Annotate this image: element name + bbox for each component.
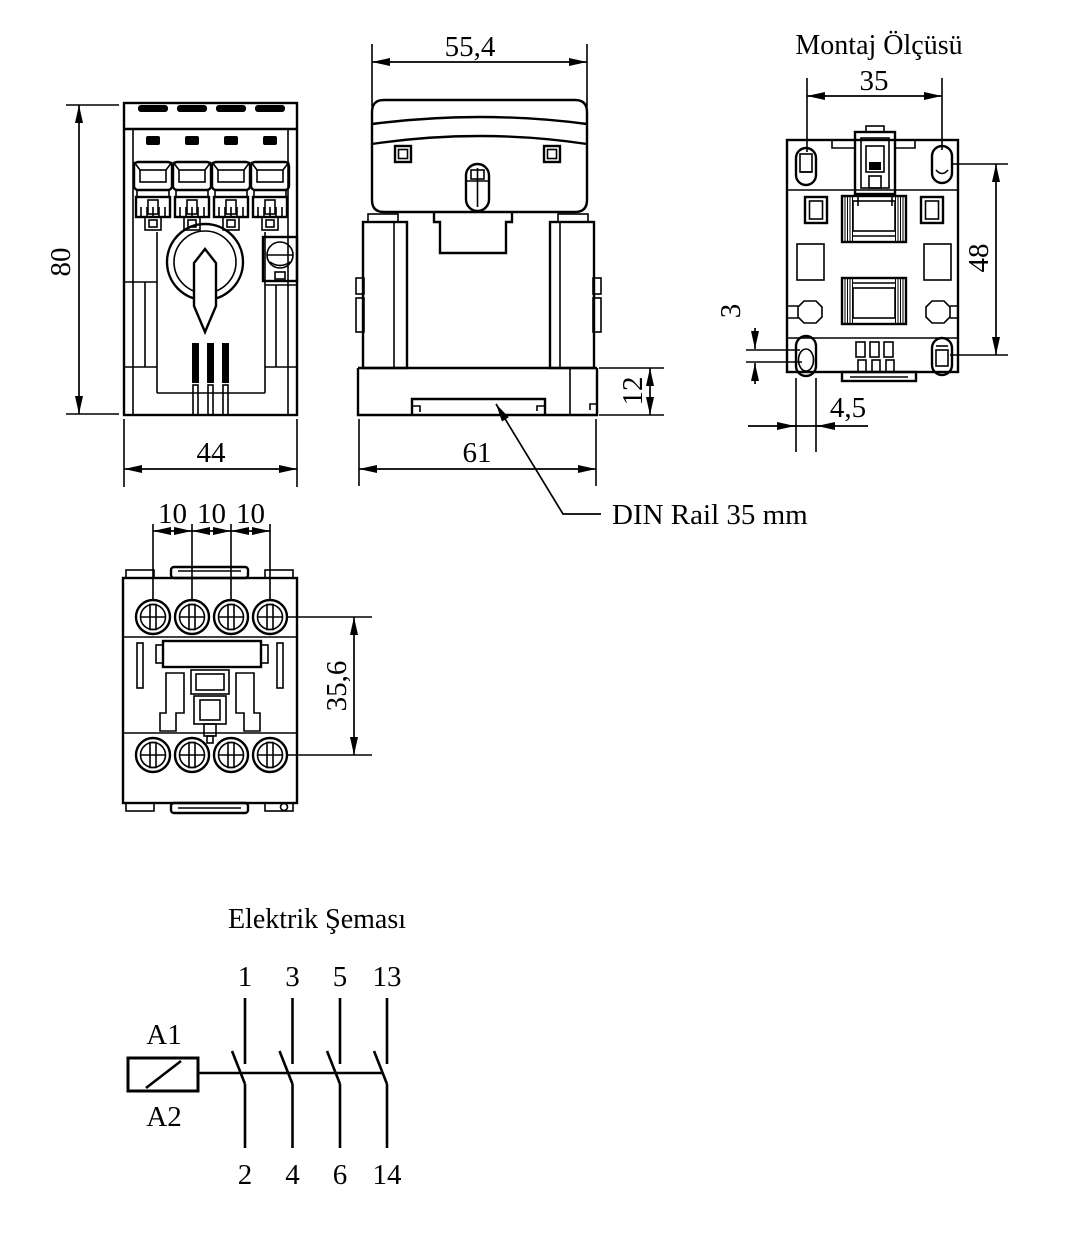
terminal-clamp xyxy=(173,162,211,230)
terminal-screw xyxy=(253,600,287,634)
dim-base-width: 61 xyxy=(463,437,492,469)
coil-window xyxy=(842,278,906,324)
terminal-screw xyxy=(253,738,287,772)
side-view-dimensions: 55,4 12 61 DIN Rail 35 mm xyxy=(359,31,808,531)
mounting-hole xyxy=(932,146,952,183)
contactor-drawing-svg: 80 44 xyxy=(0,0,1080,1236)
dim-front-height: 80 xyxy=(45,248,77,277)
dim-slot-width: 4,5 xyxy=(830,392,866,424)
front-view-device xyxy=(124,103,297,415)
coil-terminal-a1: A1 xyxy=(146,1019,181,1051)
dim-hole-pitch-x: 35 xyxy=(860,65,889,97)
din-rail-callout: DIN Rail 35 mm xyxy=(612,499,808,531)
schematic: Elektrik Şeması A1 A2 xyxy=(128,904,406,1191)
terminal-screw xyxy=(175,738,209,772)
terminal-label-bottom: 6 xyxy=(333,1159,348,1191)
terminal-screw xyxy=(136,738,170,772)
schematic-title: Elektrik Şeması xyxy=(228,904,406,935)
terminal-label-top: 5 xyxy=(333,961,348,993)
dim-front-width: 44 xyxy=(197,437,227,469)
keyhole-slot xyxy=(466,164,489,211)
mounting-clip xyxy=(855,126,895,206)
terminal-label-top: 3 xyxy=(285,961,300,993)
dim-pitch-2: 10 xyxy=(197,498,226,530)
dim-rail-height: 12 xyxy=(617,377,649,406)
mounting-view-dimensions: 35 48 3 4,5 xyxy=(715,65,1008,452)
mounting-view-title: Montaj Ölçüsü xyxy=(795,30,962,61)
bottom-view: 10 10 10 35,6 xyxy=(123,498,372,813)
mounting-hole xyxy=(796,148,816,185)
dim-pitch-1: 10 xyxy=(158,498,187,530)
terminal-screw xyxy=(136,600,170,634)
terminal-label-bottom: 2 xyxy=(238,1159,253,1191)
dim-slot-offset: 3 xyxy=(715,304,747,319)
din-rail-foot xyxy=(358,368,597,415)
terminal-screw xyxy=(214,600,248,634)
coil-window xyxy=(842,196,906,242)
terminal-label-bottom: 14 xyxy=(373,1159,403,1191)
coil-symbol xyxy=(128,1058,198,1091)
aux-screw xyxy=(263,237,297,281)
side-view: 55,4 12 61 DIN Rail 35 mm xyxy=(356,31,808,531)
knob-pointer xyxy=(194,249,216,332)
terminal-label-top: 13 xyxy=(373,961,402,993)
front-view: 80 44 xyxy=(45,103,297,487)
dim-pitch-3: 10 xyxy=(236,498,265,530)
mounting-hole xyxy=(796,336,816,376)
terminal-clamp xyxy=(251,162,289,230)
mounting-hole xyxy=(932,338,952,375)
technical-drawing-page: 80 44 xyxy=(0,0,1080,1236)
dim-row-distance: 35,6 xyxy=(321,661,353,712)
terminal-label-bottom: 4 xyxy=(285,1159,300,1191)
coil-terminal-a2: A2 xyxy=(146,1101,181,1133)
terminal-screw xyxy=(214,738,248,772)
terminal-clamp xyxy=(134,162,172,230)
terminal-screw xyxy=(175,600,209,634)
mounting-view: Montaj Ölçüsü xyxy=(715,30,1008,452)
terminal-label-top: 1 xyxy=(238,961,253,993)
dim-hole-pitch-y: 48 xyxy=(963,244,995,273)
side-view-device xyxy=(356,100,601,415)
bottom-view-device xyxy=(123,567,297,813)
dim-side-width: 55,4 xyxy=(445,31,496,63)
mounting-view-device xyxy=(787,126,958,381)
terminal-clamp xyxy=(212,162,250,230)
